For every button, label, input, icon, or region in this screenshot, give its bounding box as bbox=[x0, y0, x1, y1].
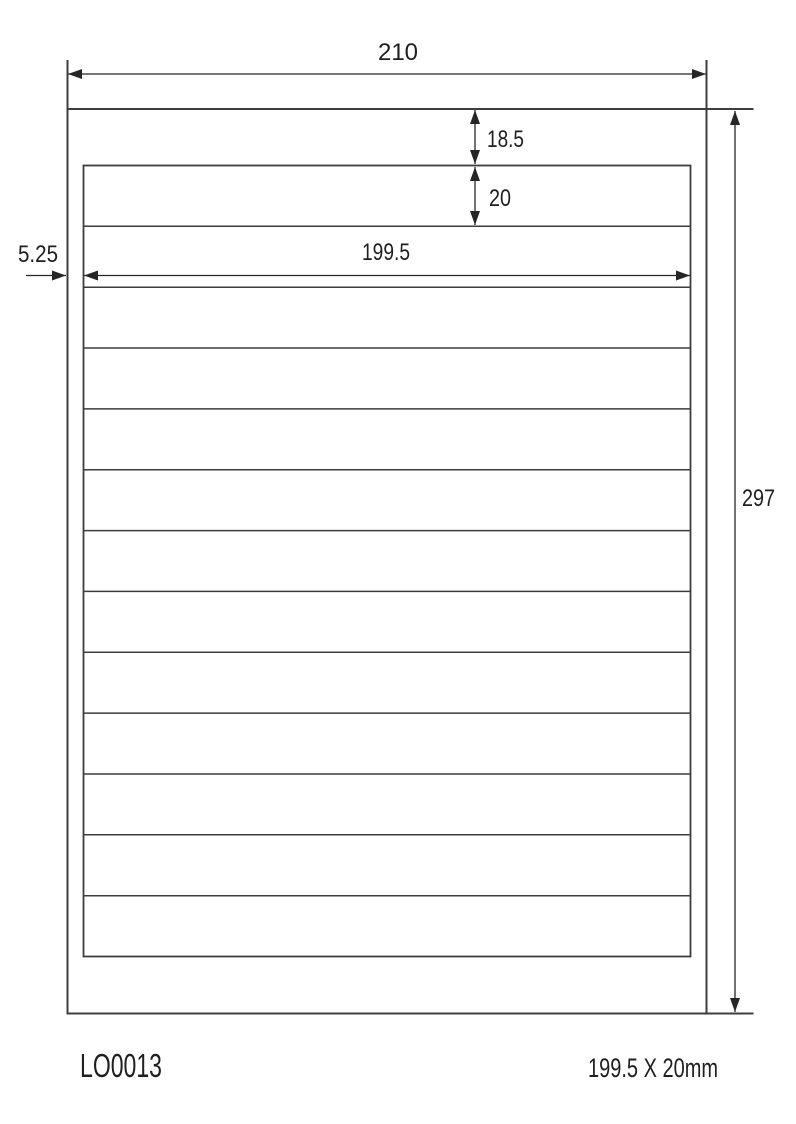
page-width-value: 210 bbox=[378, 39, 418, 66]
dimension-top-margin: 18.5 bbox=[475, 110, 524, 164]
product-code: LO0013 bbox=[80, 1047, 162, 1084]
dimension-page-height: 297 bbox=[735, 111, 775, 1012]
page-height-value: 297 bbox=[742, 485, 775, 512]
label-height-value: 20 bbox=[489, 185, 511, 212]
dimension-page-width: 210 bbox=[68, 39, 706, 74]
label-width-value: 199.5 bbox=[362, 239, 410, 266]
label-template-sheet: 210 297 18.5 20 199.5 5.25 LO0013 19 bbox=[0, 0, 796, 1124]
label-size-text: 199.5 X 20mm bbox=[588, 1053, 718, 1083]
side-margin-value: 5.25 bbox=[18, 241, 58, 268]
dimension-side-margin: 5.25 bbox=[18, 241, 66, 276]
dimension-drawing: 210 297 18.5 20 199.5 5.25 LO0013 19 bbox=[0, 0, 796, 1124]
label-area-outline bbox=[84, 166, 691, 957]
top-margin-value: 18.5 bbox=[487, 126, 524, 153]
